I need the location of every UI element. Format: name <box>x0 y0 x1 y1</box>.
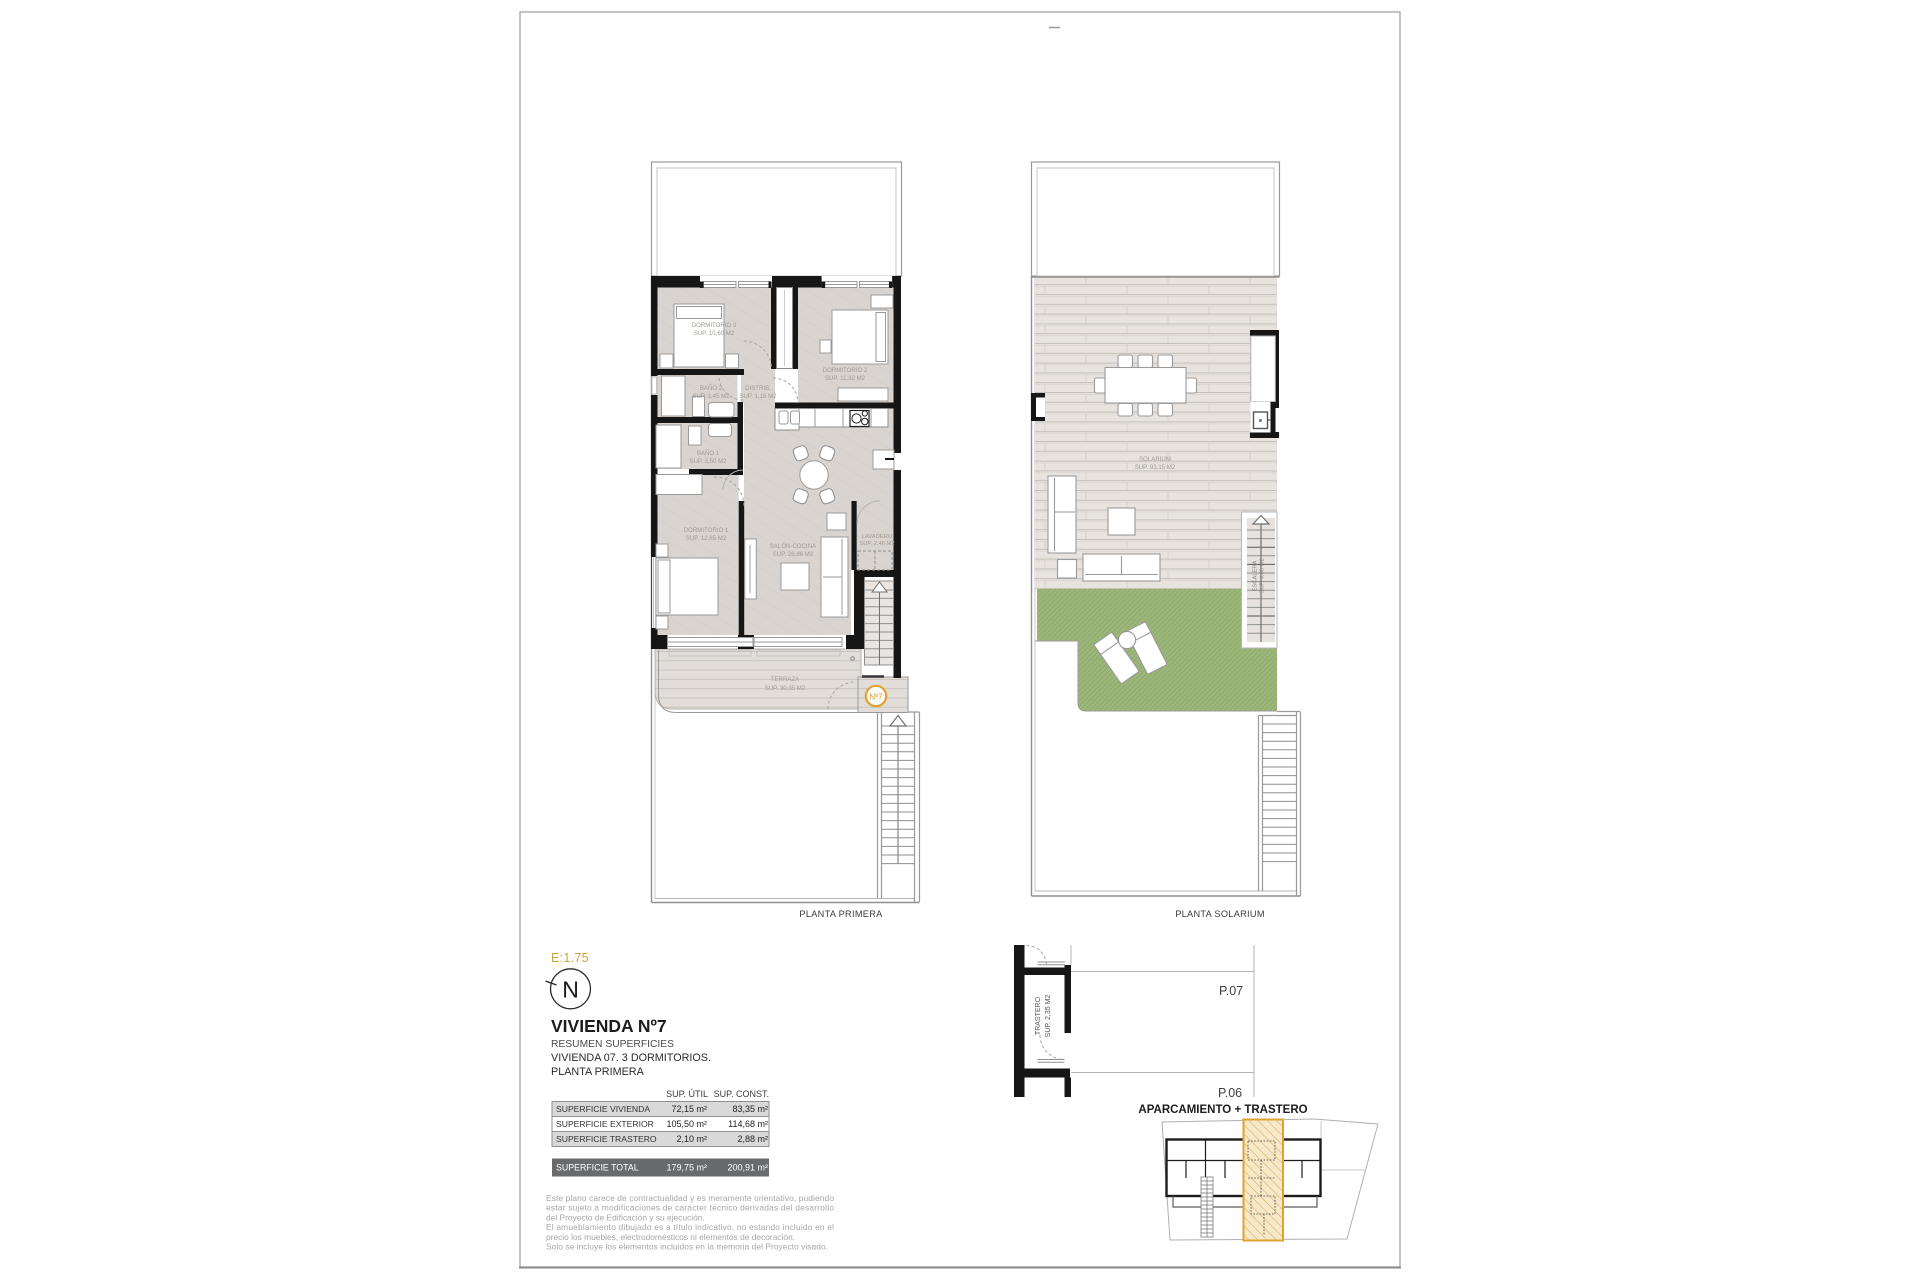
svg-text:del Proyecto de Edificación y: del Proyecto de Edificación y su ejecuci… <box>546 1212 705 1222</box>
svg-text:SUP. 4,80 M2: SUP. 4,80 M2 <box>1260 558 1266 593</box>
svg-text:LAVADERO: LAVADERO <box>862 534 893 540</box>
svg-text:Este plano carece de contractu: Este plano carece de contractualidad y e… <box>546 1193 834 1203</box>
svg-text:RESUMEN SUPERFICIES: RESUMEN SUPERFICIES <box>551 1039 674 1050</box>
svg-text:DORMITORIO 3: DORMITORIO 3 <box>692 322 737 329</box>
svg-text:SUP. 30,35 M2: SUP. 30,35 M2 <box>765 685 806 692</box>
svg-text:2,88 m²: 2,88 m² <box>737 1134 768 1144</box>
svg-text:Solo se incluye los elementos: Solo se incluye los elementos incluidos … <box>546 1242 828 1252</box>
svg-text:APARCAMIENTO + TRASTERO: APARCAMIENTO + TRASTERO <box>1138 1104 1307 1116</box>
svg-text:SUPERFICIE TRASTERO: SUPERFICIE TRASTERO <box>556 1134 657 1144</box>
svg-text:SUP. 12,85 M2: SUP. 12,85 M2 <box>686 535 727 542</box>
svg-text:N: N <box>562 977 579 1003</box>
svg-text:SALÓN-COCINA: SALÓN-COCINA <box>770 543 817 550</box>
svg-text:72,15 m²: 72,15 m² <box>671 1104 707 1114</box>
svg-text:105,50 m²: 105,50 m² <box>666 1119 707 1129</box>
svg-text:SUPERFICIE TOTAL: SUPERFICIE TOTAL <box>556 1163 639 1173</box>
svg-text:SOLARIUM: SOLARIUM <box>1139 456 1171 463</box>
svg-text:DISTRIB.: DISTRIB. <box>745 385 771 392</box>
svg-text:SUP. 2,46 M2: SUP. 2,46 M2 <box>859 541 894 547</box>
svg-text:SUP. 2,35 M2: SUP. 2,35 M2 <box>1045 995 1052 1038</box>
svg-text:estar sujeto a modificaciones: estar sujeto a modificaciones de carácte… <box>546 1203 834 1213</box>
svg-text:SUP. 93,15 M2: SUP. 93,15 M2 <box>1135 464 1176 471</box>
svg-text:SUP. 10,60 M2: SUP. 10,60 M2 <box>694 330 735 337</box>
svg-text:SUPERFICIE VIVIENDA: SUPERFICIE VIVIENDA <box>556 1104 650 1114</box>
svg-text:SUP. 3,45 M2: SUP. 3,45 M2 <box>692 393 730 400</box>
svg-text:TRASTERO: TRASTERO <box>1035 996 1042 1035</box>
svg-text:SUP. 11,32 M2: SUP. 11,32 M2 <box>825 375 866 382</box>
svg-text:SUP. CONST.: SUP. CONST. <box>714 1089 769 1099</box>
svg-text:SUP. 26,86 M2: SUP. 26,86 M2 <box>773 551 814 558</box>
svg-text:DORMITORIO 1: DORMITORIO 1 <box>684 527 729 534</box>
svg-text:BAÑO 2: BAÑO 2 <box>700 385 723 392</box>
svg-text:precio los muebles, electrodom: precio los muebles, electrodomésticos ni… <box>546 1232 795 1242</box>
svg-text:TERRAZA: TERRAZA <box>771 676 800 683</box>
svg-text:E:1.75: E:1.75 <box>551 951 589 965</box>
svg-text:ESCALERA: ESCALERA <box>1253 560 1259 591</box>
svg-text:El amueblamiento dibujado es a: El amueblamiento dibujado es a título in… <box>546 1222 834 1232</box>
svg-text:83,35 m²: 83,35 m² <box>732 1104 768 1114</box>
svg-text:BAÑO 1: BAÑO 1 <box>697 450 720 457</box>
svg-text:P.07: P.07 <box>1219 984 1243 998</box>
svg-text:SUP. ÚTIL: SUP. ÚTIL <box>666 1089 708 1099</box>
svg-text:PLANTA PRIMERA: PLANTA PRIMERA <box>799 909 883 919</box>
svg-text:SUP. 1,16 M2: SUP. 1,16 M2 <box>739 393 777 400</box>
svg-text:200,91 m²: 200,91 m² <box>727 1163 768 1173</box>
svg-text:P.06: P.06 <box>1218 1086 1242 1100</box>
svg-text:PLANTA SOLARIUM: PLANTA SOLARIUM <box>1175 909 1265 919</box>
svg-text:VIVIENDA Nº7: VIVIENDA Nº7 <box>551 1016 667 1036</box>
svg-text:VIVIENDA 07. 3 DORMITORIOS.: VIVIENDA 07. 3 DORMITORIOS. <box>551 1052 711 1064</box>
svg-text:114,68 m²: 114,68 m² <box>728 1119 768 1129</box>
svg-text:179,75 m²: 179,75 m² <box>666 1163 707 1173</box>
svg-text:SUP. 3,50 M2: SUP. 3,50 M2 <box>689 458 727 465</box>
svg-text:PLANTA PRIMERA: PLANTA PRIMERA <box>551 1066 645 1078</box>
svg-text:2,10 m²: 2,10 m² <box>676 1134 707 1144</box>
svg-text:DORMITORIO 2: DORMITORIO 2 <box>823 367 868 374</box>
svg-text:SUPERFICIE EXTERIOR: SUPERFICIE EXTERIOR <box>556 1119 654 1129</box>
svg-text:Nº7: Nº7 <box>869 693 883 702</box>
